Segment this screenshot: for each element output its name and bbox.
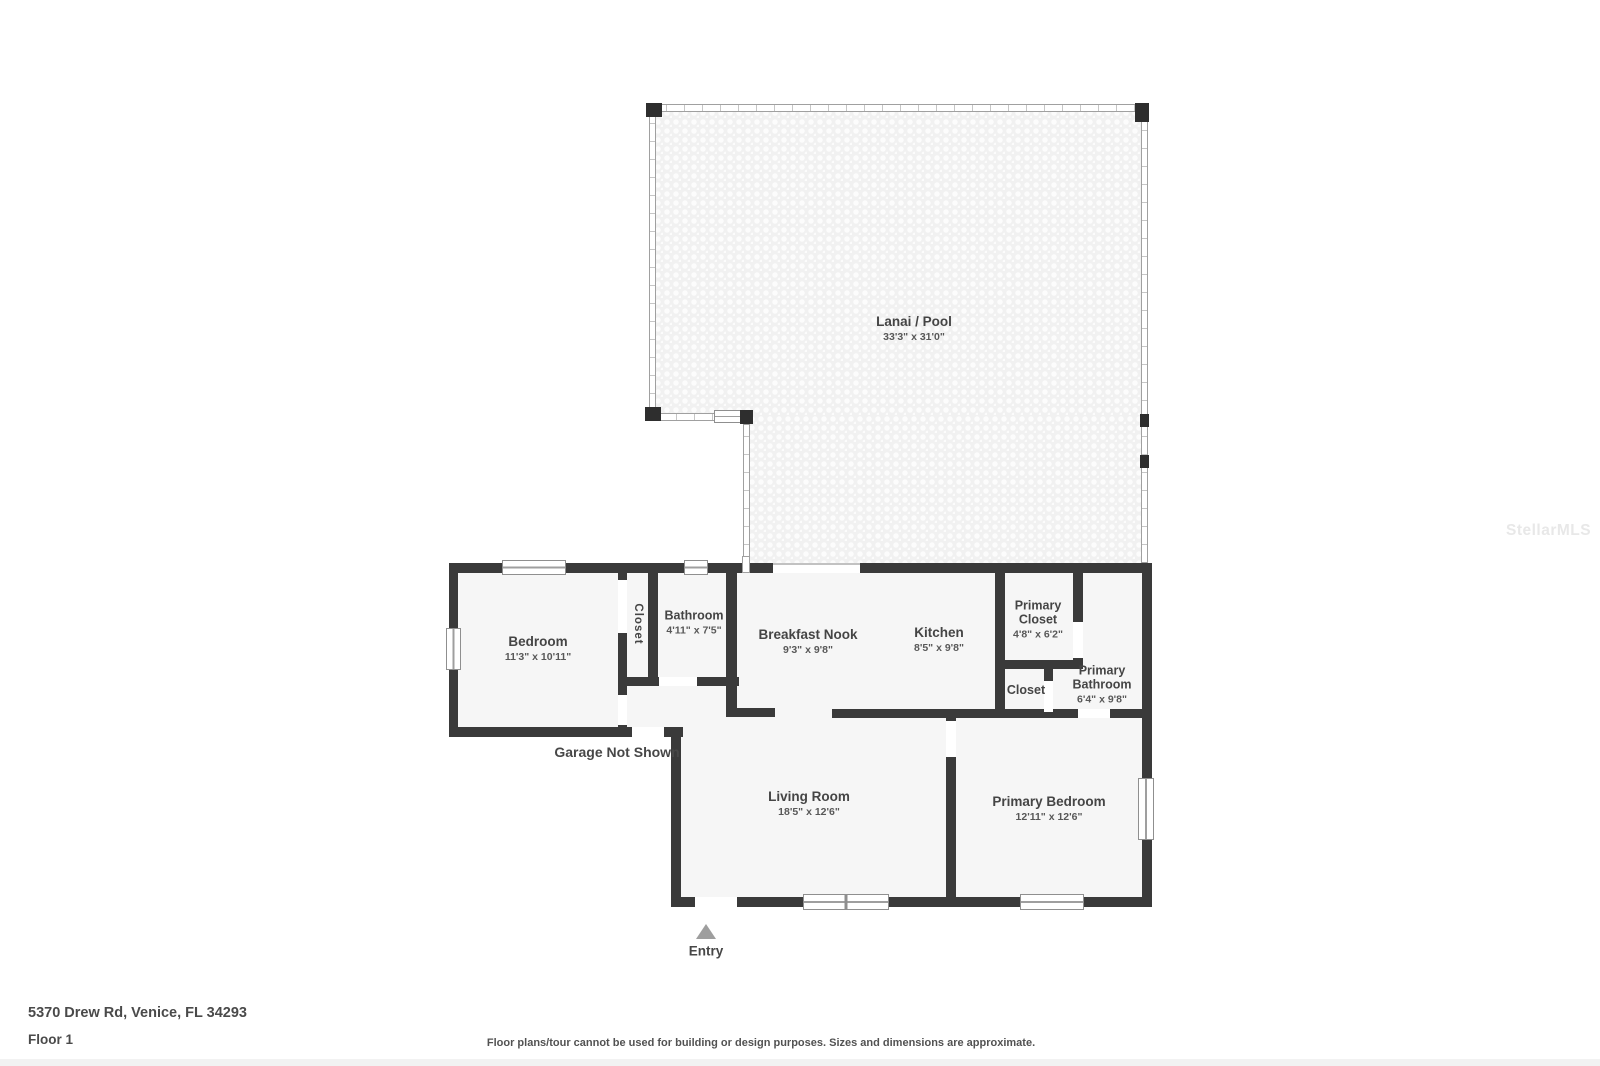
disclaimer-text: Floor plans/tour cannot be used for buil… [487, 1037, 1035, 1049]
room-label-closet: Closet [632, 603, 644, 644]
room-name: Primary Bathroom [1061, 664, 1143, 692]
sliding-door-opening [773, 563, 860, 573]
window [1020, 894, 1084, 910]
door-gap [695, 897, 737, 907]
room-dims: 4'11" x 7'5" [664, 625, 723, 637]
entry-label: Entry [689, 944, 724, 959]
watermark-text: StellarMLS [1506, 522, 1591, 540]
room-name: Bedroom [505, 635, 571, 650]
door-gap [1078, 709, 1110, 718]
garage-note: Garage Not Shown [554, 744, 679, 760]
screen-post [1135, 103, 1149, 122]
screen-post [645, 407, 661, 421]
address-text: 5370 Drew Rd, Venice, FL 34293 [28, 1005, 247, 1021]
door-gap [618, 580, 627, 633]
lanai-floor [654, 109, 1144, 418]
room-dims: 9'3" x 9'8" [758, 645, 857, 657]
room-name: Lanai / Pool [876, 315, 952, 330]
room-name: Kitchen [914, 626, 964, 641]
room-name: Bathroom [664, 609, 723, 623]
window [446, 628, 461, 670]
screen-post [646, 103, 662, 117]
room-label-bathroom: Bathroom 4'11" x 7'5" [664, 609, 723, 636]
screen-wall [742, 556, 750, 573]
wall [648, 563, 658, 686]
room-fill [449, 563, 740, 727]
screen-post [740, 410, 753, 424]
wall [1142, 563, 1152, 907]
room-label-lanai: Lanai / Pool 33'3" x 31'0" [876, 315, 952, 343]
room-label-primary-closet: Primary Closet 4'8" x 6'2" [1007, 599, 1069, 640]
room-label-kitchen: Kitchen 8'5" x 9'8" [914, 626, 964, 654]
room-label-primary-bathroom: Primary Bathroom 6'4" x 9'8" [1061, 664, 1143, 705]
door-gap [618, 695, 627, 725]
room-dims: 12'11" x 12'6" [992, 812, 1105, 824]
room-label-bedroom: Bedroom 11'3" x 10'11" [505, 635, 571, 663]
floor-label: Floor 1 [28, 1032, 73, 1047]
bottom-strip [0, 1059, 1600, 1066]
lanai-floor [748, 415, 1144, 563]
room-name: Primary Closet [1007, 599, 1069, 627]
screen-post [1140, 414, 1149, 427]
door-gap [1044, 681, 1053, 712]
room-label-primary-bedroom: Primary Bedroom 12'11" x 12'6" [992, 795, 1105, 823]
door-gap [632, 727, 664, 737]
wall [726, 563, 737, 717]
window [1138, 778, 1154, 840]
room-dims: 33'3" x 31'0" [876, 332, 952, 344]
room-dims: 8'5" x 9'8" [914, 643, 964, 655]
room-dims: 18'5" x 12'6" [768, 807, 850, 819]
wall [995, 563, 1005, 718]
room-name: Primary Bedroom [992, 795, 1105, 810]
screen-wall [648, 104, 1148, 112]
door-gap [1073, 622, 1083, 658]
room-dims: 11'3" x 10'11" [505, 652, 571, 664]
room-name: Breakfast Nook [758, 628, 857, 643]
room-label-breakfast-nook: Breakfast Nook 9'3" x 9'8" [758, 628, 857, 656]
screen-wall [1141, 112, 1148, 563]
screen-wall [658, 413, 718, 421]
window [803, 894, 889, 910]
window [502, 560, 566, 575]
room-label-living-room: Living Room 18'5" x 12'6" [768, 790, 850, 818]
door-gap [659, 677, 697, 686]
wall [726, 708, 775, 717]
screen-post [1140, 455, 1149, 468]
screen-wall [743, 424, 750, 563]
entry-arrow-icon [696, 924, 716, 939]
room-name: Living Room [768, 790, 850, 805]
room-dims: 4'8" x 6'2" [1007, 629, 1069, 641]
room-name: Closet [1007, 684, 1045, 698]
screen-wall [649, 112, 656, 412]
room-dims: 6'4" x 9'8" [1061, 694, 1143, 706]
window [684, 560, 708, 575]
door-gap [946, 721, 956, 757]
room-label-closet-2: Closet [1007, 684, 1045, 698]
floorplan-canvas: Lanai / Pool 33'3" x 31'0" Bedroom 11'3"… [0, 0, 1600, 1066]
